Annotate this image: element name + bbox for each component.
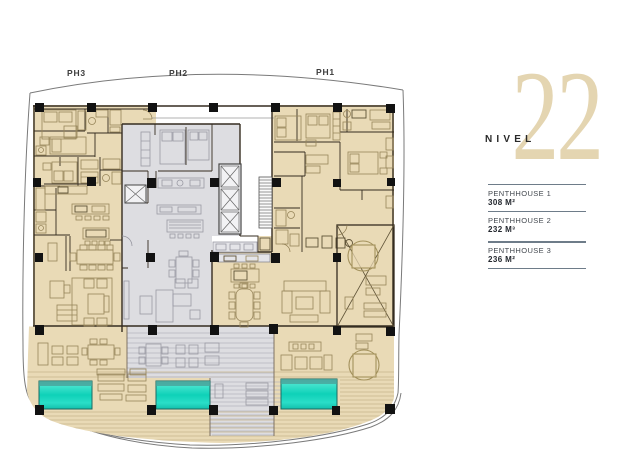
svg-text:PH1: PH1	[316, 67, 335, 77]
svg-text:PH2: PH2	[169, 68, 188, 78]
svg-text:PH3: PH3	[67, 68, 86, 78]
